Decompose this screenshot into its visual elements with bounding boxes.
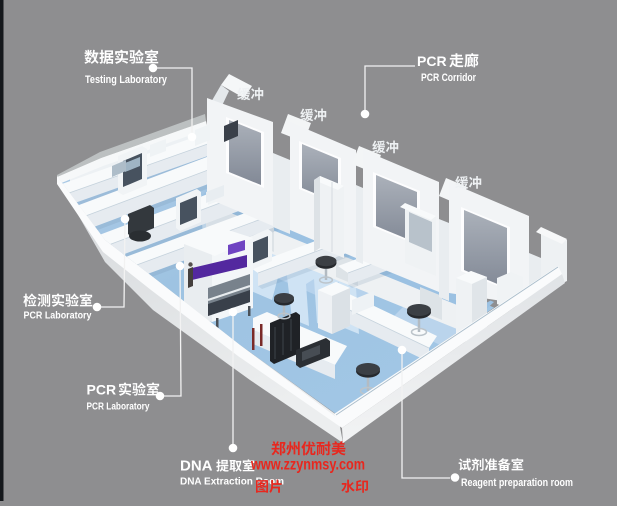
svg-text:DNA Extraction Room: DNA Extraction Room [180, 476, 284, 488]
svg-text:PCR Laboratory: PCR Laboratory [87, 401, 150, 413]
svg-text:DNA: DNA [180, 458, 213, 475]
svg-text:PCR: PCR [87, 382, 117, 398]
svg-text:PCR: PCR [417, 53, 447, 69]
svg-text:Reagent preparation room: Reagent preparation room [461, 477, 573, 489]
svg-text:www.zzynmsy.com: www.zzynmsy.com [250, 457, 365, 474]
svg-text:PCR Corridor: PCR Corridor [421, 72, 477, 84]
svg-text:PCR Laboratory: PCR Laboratory [24, 310, 92, 322]
svg-text:Testing Laboratory: Testing Laboratory [85, 74, 168, 86]
